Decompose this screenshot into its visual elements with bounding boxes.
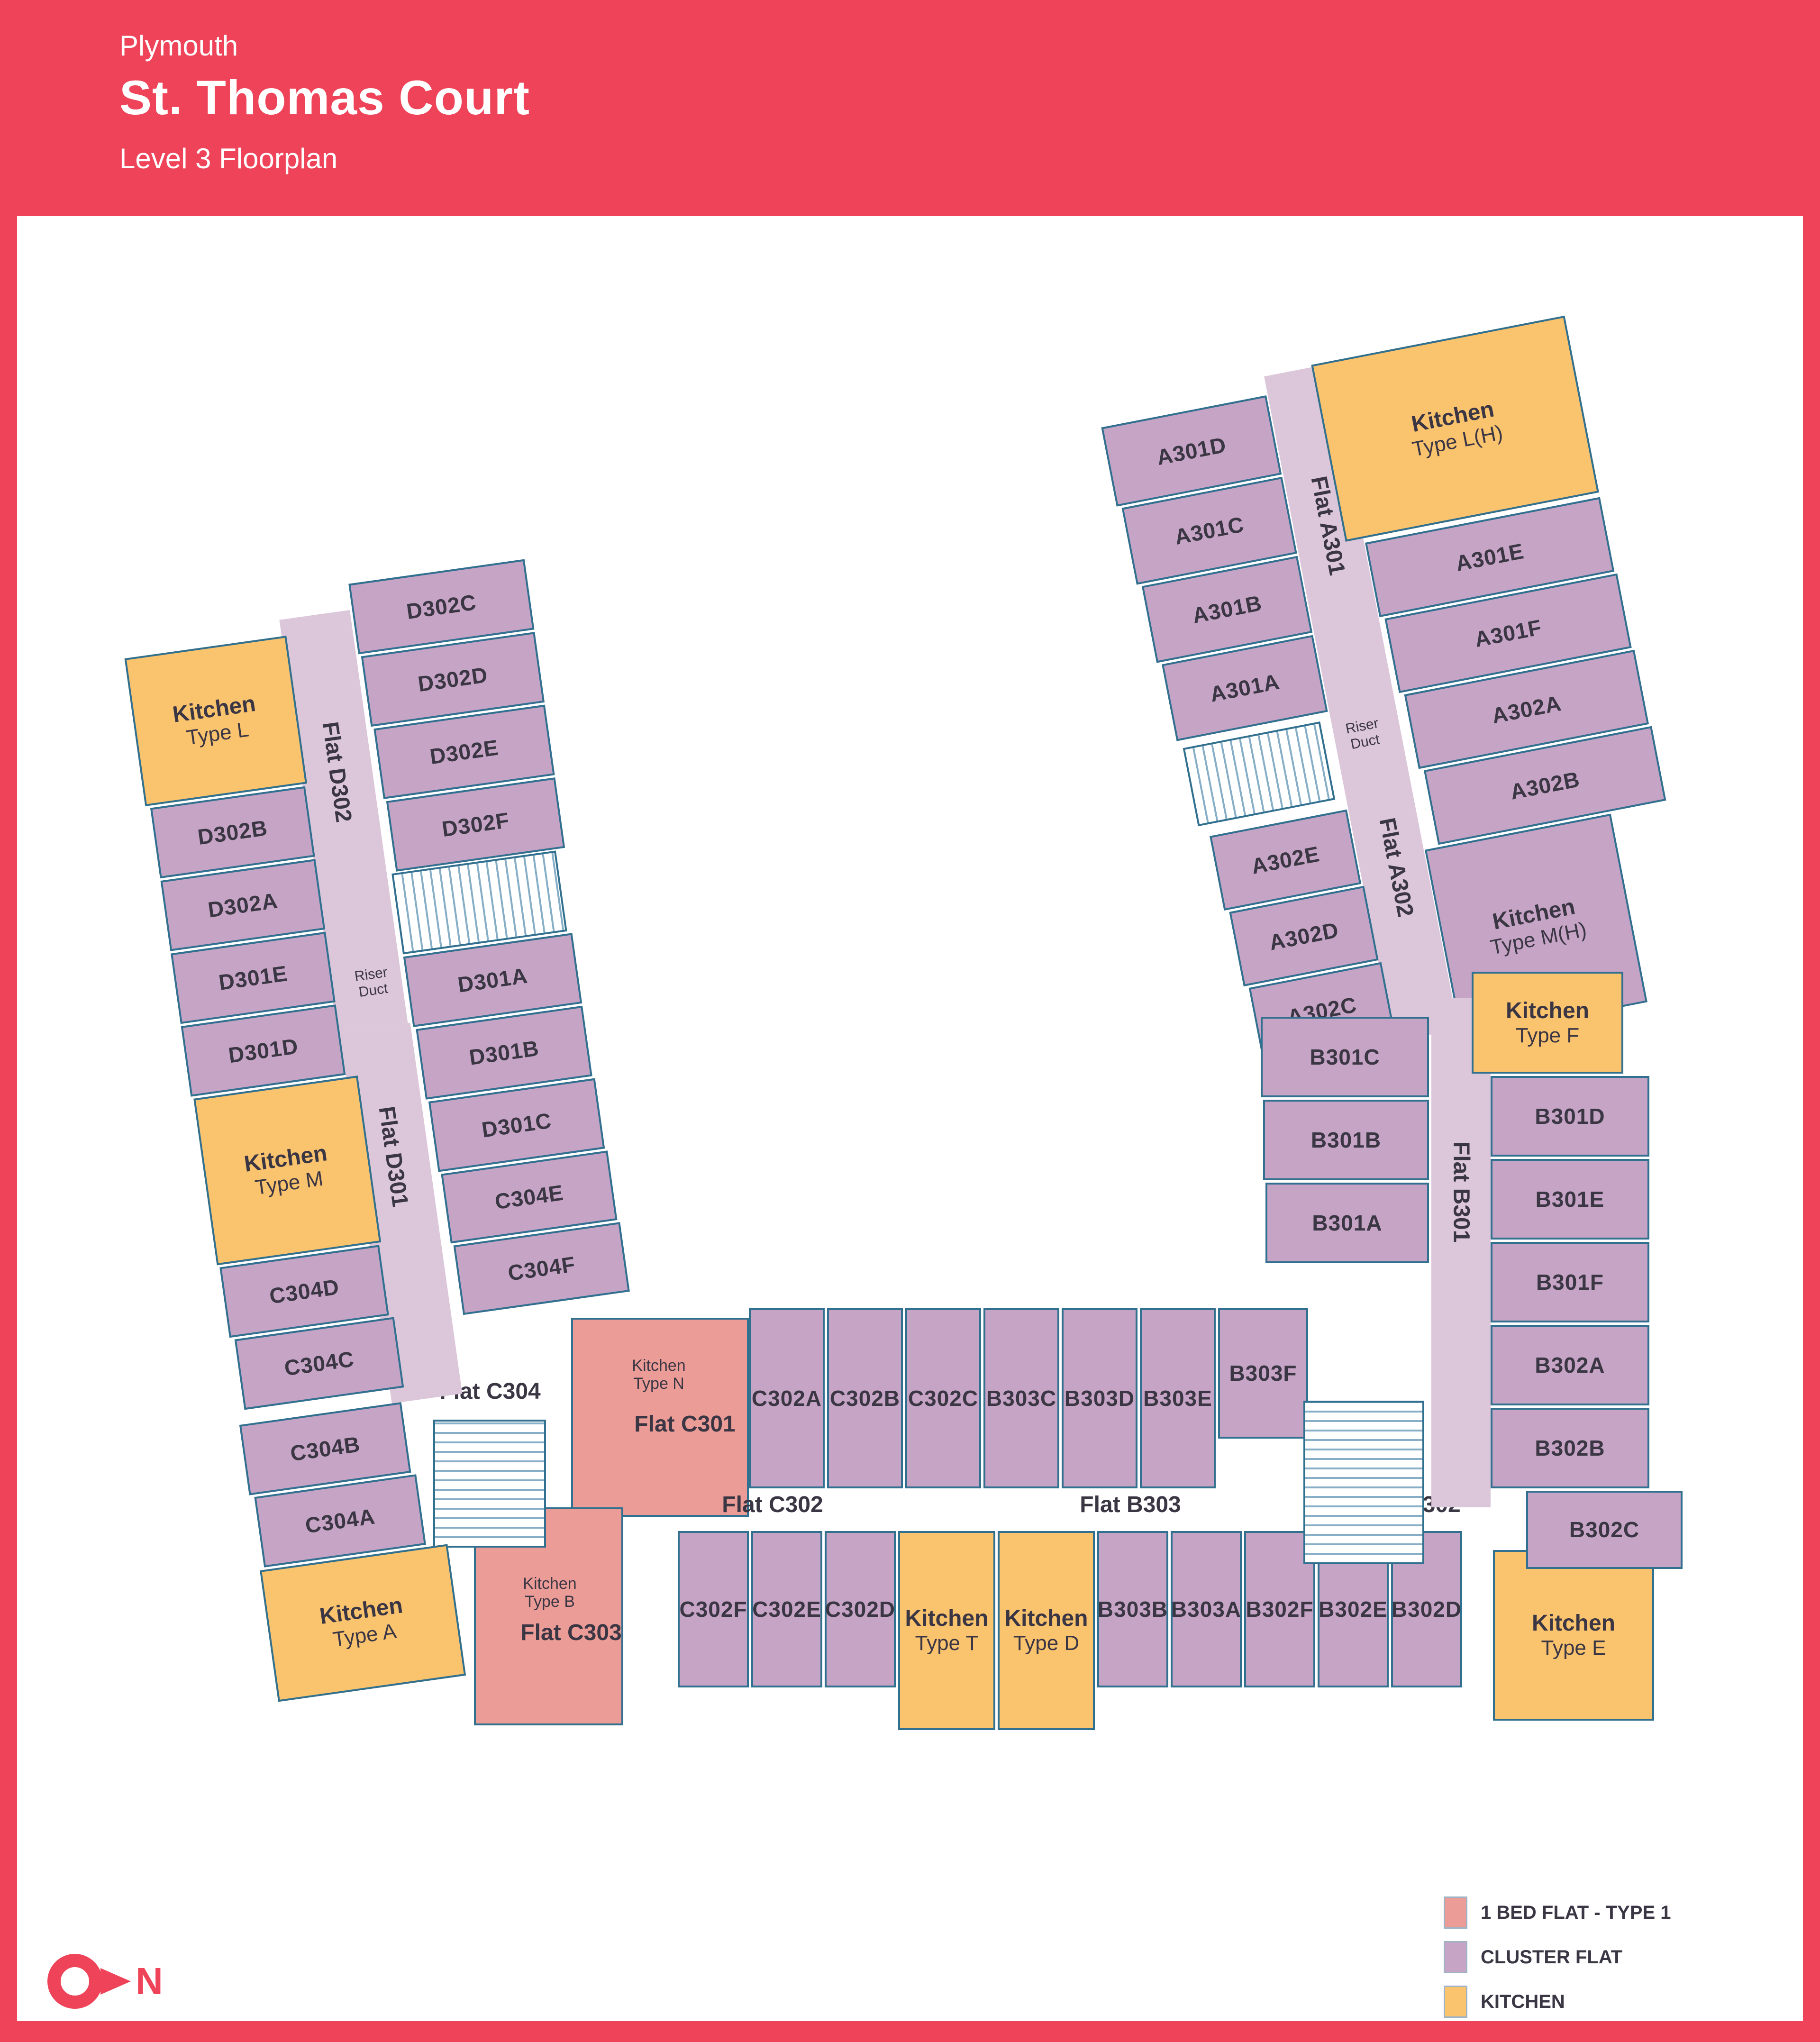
label-riser-d-1: Duct: [358, 981, 389, 1001]
room-c302c: C302C: [905, 1308, 981, 1488]
legend-item-cluster: CLUSTER FLAT: [1444, 1941, 1671, 1974]
room-label-d302f-0: D302F: [440, 807, 511, 841]
room-label-c304a-0: C304A: [304, 1504, 377, 1538]
room-label-b302d-0: B302D: [1392, 1597, 1462, 1622]
legend-swatch-onebed: [1444, 1896, 1467, 1929]
room-label-b301d-0: B301D: [1535, 1104, 1605, 1129]
room-label-kitchen-d-1: Type D: [1013, 1632, 1079, 1656]
room-label-c302b-0: C302B: [830, 1386, 900, 1411]
label-flat-c302: Flat C302: [718, 1486, 827, 1524]
room-b303d: B303D: [1062, 1308, 1137, 1488]
room-label-kitchen-t-0: Kitchen: [905, 1605, 988, 1632]
room-label-d302b-0: D302B: [196, 815, 269, 849]
room-label-a301f-0: A301F: [1473, 614, 1544, 652]
room-c302e: C302E: [751, 1531, 822, 1687]
room-b301d: B301D: [1491, 1076, 1649, 1157]
label-flat-b303: Flat B303: [1076, 1486, 1185, 1524]
room-label-d302a-0: D302A: [206, 888, 279, 922]
label-flat-b301: Flat B301: [1431, 1090, 1491, 1294]
north-arrow-icon: [47, 1954, 102, 2009]
room-label-a302a-0: A302A: [1490, 690, 1564, 728]
room-kitchen-l: KitchenType L: [125, 636, 307, 806]
room-label-kitchen-e-0: Kitchen: [1532, 1610, 1615, 1636]
room-b303a: B303A: [1171, 1531, 1242, 1687]
room-b302a: B302A: [1491, 1325, 1649, 1405]
header-city: Plymouth: [119, 29, 238, 62]
label-riser-d: RiserDuct: [335, 954, 410, 1011]
room-label-d302e-0: D302E: [428, 735, 500, 769]
page-title: St. Thomas Court: [119, 70, 530, 126]
stairs-a-icon: [1183, 721, 1336, 826]
legend-label-cluster: CLUSTER FLAT: [1481, 1947, 1622, 1968]
group-colb: KitchenType FB301CB301BB301AB301DB301EB3…: [1232, 972, 1687, 1583]
legend-item-kitchen: KITCHEN: [1444, 1985, 1671, 2018]
room-label-c304c-0: C304C: [282, 1346, 355, 1381]
room-b301c: B301C: [1261, 1017, 1429, 1097]
room-label-kitchen-f-1: Type F: [1516, 1024, 1580, 1048]
legend-swatch-kitchen: [1444, 1986, 1467, 2018]
room-label-b303e-0: B303E: [1143, 1386, 1212, 1411]
room-label-c302a-0: C302A: [752, 1386, 822, 1411]
north-arrow-pointer: [100, 1968, 131, 1995]
room-label-d301c-0: D301C: [480, 1108, 553, 1142]
room-label-b301e-0: B301E: [1536, 1187, 1605, 1212]
room-kitchen-f: KitchenType F: [1472, 972, 1623, 1074]
stairs-b-icon: [1303, 1401, 1424, 1564]
room-label-a302b-0: A302B: [1508, 766, 1582, 804]
room-label-c302e-0: C302E: [752, 1597, 821, 1622]
room-b301b: B301B: [1263, 1100, 1429, 1180]
room-label-a301c-0: A301C: [1173, 512, 1247, 550]
room-b303b: B303B: [1097, 1531, 1168, 1687]
legend-label-kitchen: KITCHEN: [1481, 1991, 1565, 2013]
header-subtitle: Level 3 Floorplan: [119, 142, 337, 175]
room-label-b302f-0: B302F: [1246, 1597, 1313, 1622]
room-b302b: B302B: [1491, 1408, 1649, 1488]
room-label-c304f-0: C304F: [506, 1251, 577, 1285]
room-c302b: C302B: [827, 1308, 903, 1488]
room-label-c304d-0: C304D: [268, 1274, 341, 1309]
room-label-c302d-0: C302D: [825, 1597, 895, 1622]
room-b301f: B301F: [1491, 1242, 1649, 1322]
room-label-b303b-0: B303B: [1098, 1597, 1168, 1622]
room-label-a301e-0: A301E: [1454, 538, 1526, 576]
room-label-b301a-0: B301A: [1312, 1211, 1382, 1236]
room-b301e: B301E: [1491, 1159, 1649, 1240]
room-label-b301f-0: B301F: [1536, 1270, 1604, 1295]
room-label-b301b-0: B301B: [1311, 1128, 1381, 1153]
room-label-a301b-0: A301B: [1190, 591, 1264, 629]
room-label-b301c-0: B301C: [1310, 1045, 1380, 1070]
room-label-a301d-0: A301D: [1155, 432, 1228, 470]
page-background: Plymouth St. Thomas Court Level 3 Floorp…: [0, 0, 1820, 2042]
room-label-kitchen-d-0: Kitchen: [1004, 1605, 1088, 1632]
room-label-b302e-0: B302E: [1319, 1597, 1388, 1622]
room-kitchen-d: KitchenType D: [998, 1531, 1095, 1730]
room-label-b303a-0: B303A: [1171, 1597, 1241, 1622]
room-kitchen-a: KitchenType A: [260, 1544, 466, 1702]
room-label-c304e-0: C304E: [493, 1180, 565, 1214]
room-b303c: B303C: [983, 1308, 1059, 1488]
room-b303e: B303E: [1140, 1308, 1216, 1488]
room-label-d302d-0: D302D: [416, 662, 489, 697]
room-label-b302c-0: B302C: [1569, 1517, 1639, 1542]
legend-item-onebed: 1 BED FLAT - TYPE 1: [1444, 1896, 1671, 1929]
room-label-b303c-0: B303C: [986, 1386, 1056, 1411]
room-label-b302b-0: B302B: [1535, 1436, 1605, 1461]
room-label-a302e-0: A302E: [1249, 841, 1322, 879]
room-label-d302c-0: D302C: [405, 589, 478, 624]
room-label-d301d-0: D301D: [227, 1033, 300, 1068]
legend-label-onebed: 1 BED FLAT - TYPE 1: [1481, 1902, 1671, 1923]
room-b302c: B302C: [1526, 1491, 1683, 1569]
room-b301a: B301A: [1265, 1183, 1429, 1263]
room-label-c302c-0: C302C: [908, 1386, 978, 1411]
legend-swatch-cluster: [1444, 1941, 1467, 1973]
room-label-a302d-0: A302D: [1267, 917, 1341, 955]
room-label-kitchen-t-1: Type T: [915, 1632, 979, 1656]
room-label-d301a-0: D301A: [456, 963, 529, 997]
room-label-a301a-0: A301A: [1208, 669, 1282, 707]
room-label-d301b-0: D301B: [467, 1035, 540, 1070]
room-label-kitchen-f-0: Kitchen: [1506, 998, 1589, 1024]
room-label-d301e-0: D301E: [217, 961, 289, 995]
north-label: N: [136, 1960, 163, 2003]
room-kitchen-t: KitchenType T: [898, 1531, 995, 1730]
room-label-c304b-0: C304B: [289, 1431, 362, 1466]
room-label-kitchen-e-1: Type E: [1541, 1636, 1606, 1660]
room-c302a: C302A: [749, 1308, 825, 1488]
legend: 1 BED FLAT - TYPE 1CLUSTER FLATKITCHEN: [1444, 1896, 1671, 2030]
room-label-b303d-0: B303D: [1065, 1386, 1135, 1411]
room-label-b302a-0: B302A: [1535, 1353, 1605, 1378]
room-c302d: C302D: [825, 1531, 896, 1687]
